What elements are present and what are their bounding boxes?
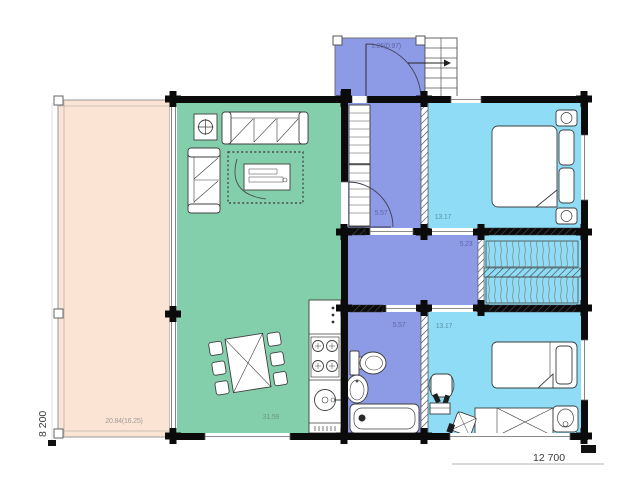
hatched-partition (421, 312, 428, 433)
kitchen (309, 300, 341, 433)
terrace-post (54, 96, 63, 105)
clothes-rail (486, 241, 578, 267)
area-label-corridor: 5.23 (460, 241, 473, 248)
chair-icon (267, 332, 282, 347)
desk-icon (475, 408, 553, 436)
fireplace-icon (194, 114, 217, 140)
washbasin-icon (346, 375, 368, 403)
wall-interior-vertical (341, 96, 348, 440)
terrace-post (54, 429, 63, 438)
porch-post (333, 36, 342, 45)
area-label-bedroom-bottom: 13.17 (436, 323, 453, 330)
wardrobe-divider (484, 268, 581, 277)
bathtub-icon (350, 404, 419, 433)
hatched-partition (421, 103, 428, 228)
chair-icon (273, 371, 288, 386)
closet-shelves (349, 105, 370, 226)
hatched-wall-segment (350, 305, 383, 312)
dimension-tick (581, 445, 596, 453)
wall-top (170, 96, 588, 103)
hall-closet (349, 105, 370, 226)
terrace-post (54, 309, 63, 318)
pillow-icon (559, 168, 574, 203)
porch-post (416, 36, 425, 45)
area-label-terrace: 20.84(16.25) (105, 418, 142, 425)
area-label-entry-porch: 1.26(0.97) (371, 43, 401, 50)
area-label-living-room: 31.59 (263, 414, 280, 421)
clothes-rail (486, 277, 578, 303)
dimension-height: 8 200 (37, 411, 49, 437)
floor-plan-drawing: 20.84(16.25) 31.59 1.26(0.97) 5.57 5.23 … (0, 0, 642, 502)
double-bed-icon (492, 126, 557, 207)
pillow-icon (559, 130, 574, 165)
area-label-bedroom-top: 13.17 (435, 214, 452, 221)
hatched-wall-segment (484, 305, 581, 312)
glazed-wall (170, 103, 177, 433)
dressing-table-icon (553, 406, 578, 432)
area-label-bathroom: 5.57 (393, 322, 406, 329)
shelf-icon (430, 403, 450, 414)
hatched-wall-segment (484, 228, 581, 235)
chair-icon (212, 361, 227, 376)
pillow-icon (556, 346, 572, 384)
dimension-width: 12 700 (533, 452, 565, 464)
terrace (54, 96, 170, 438)
hatched-wall-segment (350, 228, 365, 235)
area-label-hallway: 5.57 (375, 210, 388, 217)
floor-plan: 20.84(16.25) 31.59 1.26(0.97) 5.57 5.23 … (0, 0, 642, 502)
chair-icon (270, 351, 285, 366)
sofa-icon (222, 112, 308, 144)
corridor-floor (348, 235, 478, 305)
chair-icon (215, 380, 230, 395)
wardrobe (478, 233, 581, 312)
loveseat-icon (188, 148, 220, 213)
kitchen-counter (309, 300, 341, 433)
chair-icon (208, 341, 223, 356)
dimension-tick (48, 440, 56, 446)
toilet-icon (350, 351, 386, 375)
door-opening (352, 96, 367, 103)
terrace-floor (58, 100, 170, 437)
door-opening (341, 182, 348, 227)
